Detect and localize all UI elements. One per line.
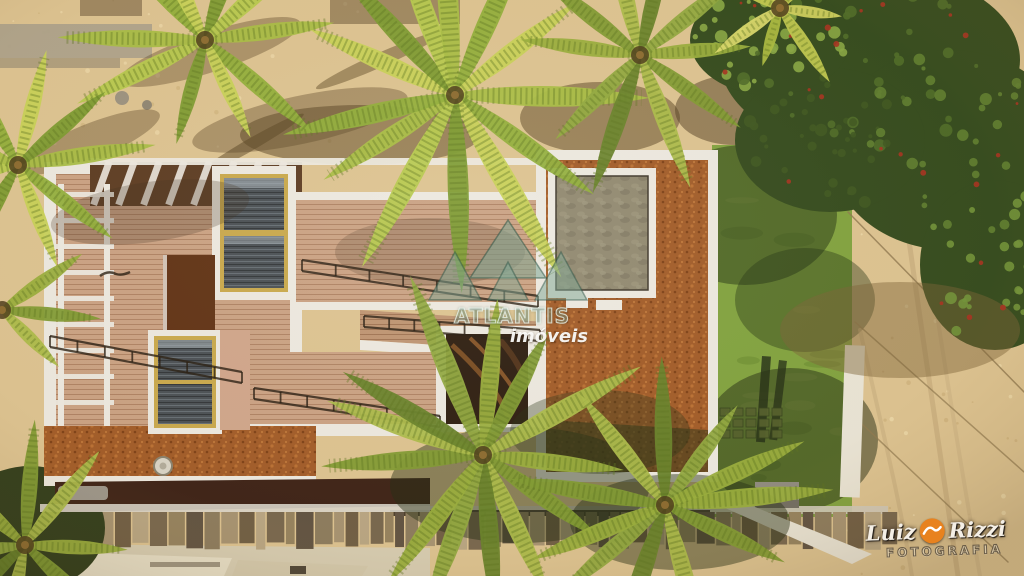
aerial-photo: ATLANTIS imóveis Luiz Rizzi FOTOGRAFIA	[0, 0, 1024, 576]
photo-canvas	[0, 0, 1024, 576]
vignette	[0, 0, 1024, 576]
